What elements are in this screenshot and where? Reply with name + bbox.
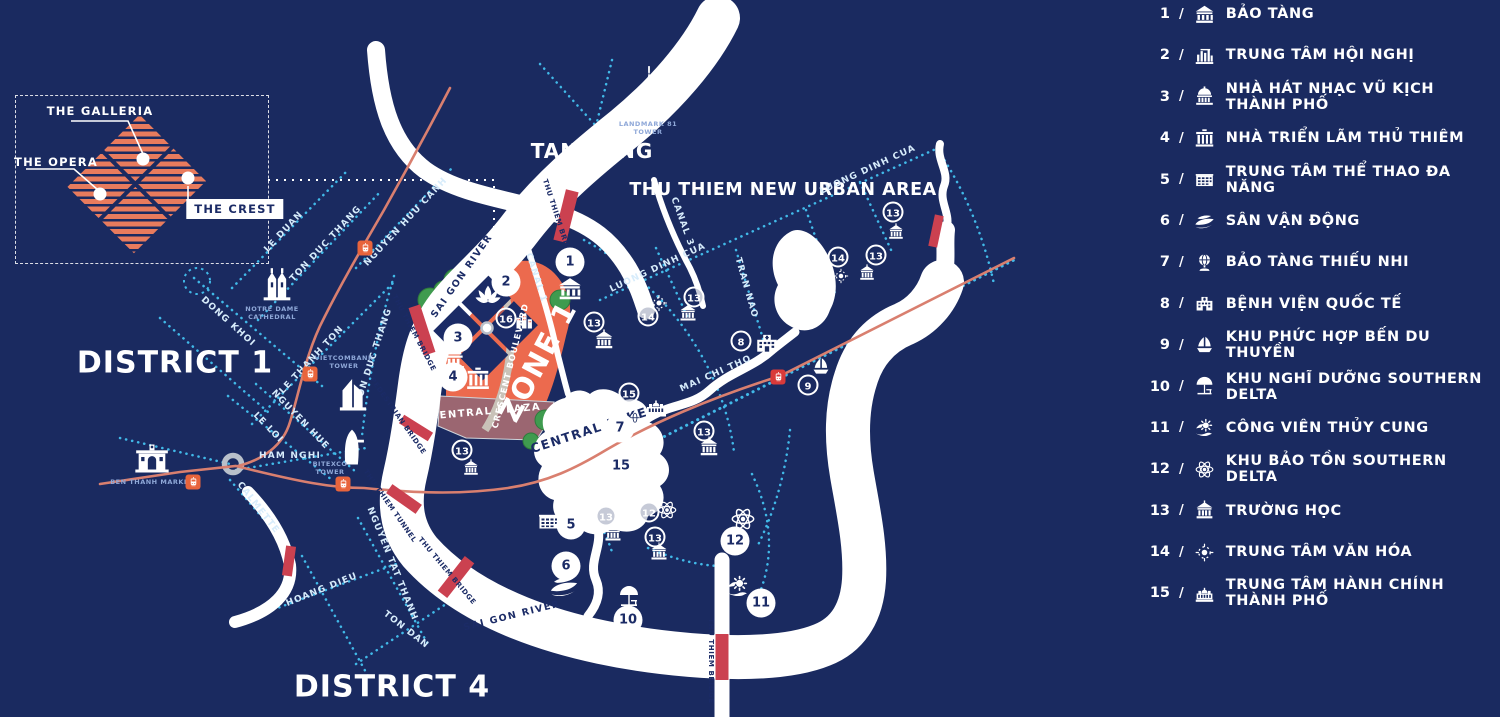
map-marker-16: 16 [496, 308, 517, 329]
legend-item-5: 5/TRUNG TÂM THỂ THAO ĐA NĂNG [1146, 168, 1496, 192]
tram-station-icon [336, 477, 351, 492]
legend-separator: / [1179, 172, 1184, 187]
street-label: SAI GON RIVER [462, 599, 561, 634]
legend-item-number: 6 [1146, 213, 1170, 229]
map-marker-3: 3 [444, 324, 473, 353]
poi-sun-icon [833, 268, 850, 285]
crest-dot [182, 172, 195, 185]
church-icon [257, 264, 297, 304]
globe-icon [1194, 252, 1215, 273]
map-marker-13: 13 [584, 312, 605, 333]
tram-icon [304, 368, 316, 380]
area-label: DISTRICT 4 [294, 670, 490, 705]
legend-item-label: KHU PHỨC HỢP BẾN DU THUYỀN [1226, 329, 1496, 361]
legend-item-label: TRUNG TÂM HÀNH CHÍNH THÀNH PHỐ [1226, 577, 1496, 609]
map-marker-1: 1 [556, 248, 585, 277]
school-icon [858, 264, 876, 282]
legend-panel: 1/BẢO TÀNG2/TRUNG TÂM HỘI NGHỊ3/NHÀ HÁT … [1146, 2, 1496, 623]
legend-item-13: 13/TRƯỜNG HỌC [1146, 499, 1496, 523]
poi-cityhall-icon [644, 395, 668, 419]
legend-item-11: 11/CÔNG VIÊN THỦY CUNG [1146, 416, 1496, 440]
sun-icon [1194, 542, 1215, 563]
opera-icon [1194, 86, 1215, 107]
poi-sailboat-icon [811, 357, 832, 378]
legend-item-icon [1192, 252, 1218, 273]
tram-station-icon [771, 370, 786, 385]
street-label: DONG KHOI [199, 295, 257, 349]
legend-item-number: 4 [1146, 130, 1170, 146]
legend-item-10: 10/KHU NGHĨ DƯỠNG SOUTHERN DELTA [1146, 375, 1496, 399]
street-label: CALMETTE [235, 480, 281, 536]
street-label: MAI CHI THO [679, 354, 754, 395]
map-marker-15: 15 [607, 452, 636, 481]
legend-item-icon [1192, 417, 1218, 438]
map-marker-13: 13 [452, 440, 473, 461]
map-marker-11: 11 [747, 589, 776, 618]
legend-item-label: TRUNG TÂM HỘI NGHỊ [1226, 47, 1415, 63]
aquarium-icon [1194, 417, 1215, 438]
street-label: PEDESTRIAN BRIDGE [368, 376, 427, 456]
map-marker-13: 13 [684, 287, 705, 308]
stadium-icon [1194, 210, 1215, 231]
street-label: CANAL 3 [668, 196, 695, 248]
legend-separator: / [1179, 7, 1184, 22]
map-marker-4: 4 [439, 363, 468, 392]
legend-item-number: 11 [1146, 420, 1170, 436]
map-marker-13: 13 [694, 421, 715, 442]
legend-item-icon [1192, 45, 1218, 66]
legend-item-9: 9/KHU PHỨC HỢP BẾN DU THUYỀN [1146, 333, 1496, 357]
street-label: LE LOI [251, 411, 285, 446]
legend-item-7: 7/BẢO TÀNG THIẾU NHI [1146, 250, 1496, 274]
legend-separator: / [1179, 338, 1184, 353]
hospital-icon [754, 330, 780, 356]
sun-icon [833, 268, 850, 285]
cityhall-icon [1194, 583, 1215, 604]
landmark-label: BITEXCO TOWER [313, 460, 348, 476]
legend-separator: / [1179, 379, 1184, 394]
poi-buildings-icon [514, 311, 534, 331]
legend-separator: / [1179, 255, 1184, 270]
map-marker-10: 10 [614, 606, 643, 635]
legend-item-icon [1192, 376, 1218, 397]
legend-item-icon [1192, 459, 1218, 480]
crest-label: THE CREST [186, 199, 283, 219]
landmark-label: NOTRE DAME CATHEDRAL [245, 305, 298, 321]
buildings-icon [514, 311, 534, 331]
poi-school-icon [858, 264, 876, 282]
legend-item-icon [1192, 128, 1218, 149]
legend-item-number: 12 [1146, 461, 1170, 477]
legend-separator: / [1179, 89, 1184, 104]
legend-item-3: 3/NHÀ HÁT NHẠC VŨ KỊCH THÀNH PHỐ [1146, 85, 1496, 109]
tram-icon [772, 371, 784, 383]
poi-museum-icon [557, 276, 583, 302]
market-icon [132, 437, 172, 477]
legend-item-number: 5 [1146, 172, 1170, 188]
street-label: THU THIEM BRIDGE [390, 293, 437, 372]
area-label: TAN CANG [531, 139, 654, 163]
legend-item-number: 9 [1146, 337, 1170, 353]
street-label: NGUYEN HUU CANH [362, 176, 449, 269]
street-label: NGUYEN TAT THANH [365, 506, 420, 622]
hospital-icon [1194, 293, 1215, 314]
map-marker-13: 13 [645, 527, 666, 548]
map-marker-14: 14 [638, 306, 659, 327]
map-marker-9: 9 [798, 375, 819, 396]
map-marker-2: 2 [492, 268, 521, 297]
legend-item-label: BẢO TÀNG THIẾU NHI [1226, 254, 1409, 270]
legend-item-label: KHU NGHĨ DƯỠNG SOUTHERN DELTA [1226, 371, 1496, 403]
legend-item-1: 1/BẢO TÀNG [1146, 2, 1496, 26]
legend-item-label: TRUNG TÂM THỂ THAO ĐA NĂNG [1226, 164, 1496, 196]
opera-dot [94, 188, 107, 201]
landmark-label: VIETCOMBANK TOWER [314, 354, 373, 370]
thu-thiem-masterplan-map: DISTRICT 1DISTRICT 4TAN CANGTHU THIEM NE… [0, 0, 1500, 717]
legend-item-number: 2 [1146, 47, 1170, 63]
legend-separator: / [1179, 462, 1184, 477]
legend-item-label: SÂN VẬN ĐỘNG [1226, 213, 1360, 229]
landmark-church-icon [257, 264, 297, 304]
area-label: DISTRICT 1 [77, 346, 273, 381]
legend-item-label: BẢO TÀNG [1226, 6, 1314, 22]
gate-icon [1194, 128, 1215, 149]
legend-separator: / [1179, 131, 1184, 146]
tram-station-icon [358, 241, 373, 256]
legend-separator: / [1179, 503, 1184, 518]
legend-item-4: 4/NHÀ TRIỂN LÃM THỦ THIÊM [1146, 126, 1496, 150]
map-marker-13: 13 [883, 202, 904, 223]
legend-separator: / [1179, 48, 1184, 63]
school-icon [462, 459, 480, 477]
opera-label: THE OPERA [14, 155, 98, 169]
street-label: TRAN NAO [733, 257, 760, 320]
atom-icon [1194, 459, 1215, 480]
legend-separator: / [1179, 213, 1184, 228]
map-marker-12: 12 [639, 502, 660, 523]
legend-item-number: 10 [1146, 379, 1170, 395]
poi-aquarium-icon [726, 574, 751, 599]
street-label: TON DAN [381, 609, 430, 651]
sports-icon [1194, 169, 1215, 190]
poi-school-icon [462, 459, 480, 477]
map-marker-6: 6 [552, 552, 581, 581]
inset-site-tiles [67, 115, 206, 254]
landmark-label: BEN THANH MARKET [110, 478, 194, 486]
landmark-label: LANDMARK 81 TOWER [619, 120, 677, 136]
tram-station-icon [303, 367, 318, 382]
project-inset-box: THE GALLERIA THE OPERA THE CREST [15, 95, 269, 264]
umbrella-icon [1194, 376, 1215, 397]
galleria-label: THE GALLERIA [47, 104, 154, 118]
inset-diagram [16, 96, 268, 263]
legend-item-icon [1192, 500, 1218, 521]
tram-station-icon [186, 475, 201, 490]
landmark81-icon [622, 65, 676, 119]
sailboat-icon [811, 357, 832, 378]
legend-separator: / [1179, 420, 1184, 435]
tram-icon [187, 476, 199, 488]
tram-icon [359, 242, 371, 254]
map-marker-7: 7 [606, 414, 635, 443]
legend-item-2: 2/TRUNG TÂM HỘI NGHỊ [1146, 43, 1496, 67]
legend-item-number: 15 [1146, 585, 1170, 601]
legend-item-label: TRƯỜNG HỌC [1226, 503, 1342, 519]
legend-item-label: KHU BẢO TỒN SOUTHERN DELTA [1226, 453, 1496, 485]
galleria-dot [137, 153, 150, 166]
museum-icon [557, 276, 583, 302]
legend-item-number: 3 [1146, 89, 1170, 105]
legend-item-number: 13 [1146, 503, 1170, 519]
legend-item-number: 14 [1146, 544, 1170, 560]
street-label: CANAL 1 [523, 252, 548, 304]
landmark-landmark81-icon [622, 65, 676, 119]
cityhall-icon [644, 395, 668, 419]
vcb-tower-icon [332, 372, 374, 414]
legend-item-label: CÔNG VIÊN THỦY CUNG [1226, 420, 1429, 436]
legend-item-number: 1 [1146, 6, 1170, 22]
legend-item-15: 15/TRUNG TÂM HÀNH CHÍNH THÀNH PHỐ [1146, 581, 1496, 605]
legend-item-12: 12/KHU BẢO TỒN SOUTHERN DELTA [1146, 457, 1496, 481]
museum-icon [1194, 4, 1215, 25]
map-marker-13: 13 [596, 506, 617, 527]
legend-item-14: 14/TRUNG TÂM VĂN HÓA [1146, 540, 1496, 564]
sailboat-icon [1194, 335, 1215, 356]
street-label: HOANG DIEU [285, 571, 359, 609]
map-marker-15: 15 [619, 383, 640, 404]
legend-item-icon [1192, 335, 1218, 356]
map-marker-14: 14 [828, 247, 849, 268]
legend-item-label: NHÀ HÁT NHẠC VŨ KỊCH THÀNH PHỐ [1226, 81, 1496, 113]
legend-item-icon [1192, 542, 1218, 563]
legend-separator: / [1179, 296, 1184, 311]
map-marker-5: 5 [557, 511, 586, 540]
legend-item-label: BỆNH VIỆN QUỐC TẾ [1226, 296, 1402, 312]
poi-school-icon [887, 223, 905, 241]
map-marker-13: 13 [866, 245, 887, 266]
street-label: THU THIEM BRIDGE [707, 618, 715, 703]
legend-item-icon [1192, 210, 1218, 231]
convention-icon [1194, 45, 1215, 66]
street-label: THU THIEM BRIDGE [416, 536, 477, 607]
legend-item-6: 6/SÂN VẬN ĐỘNG [1146, 209, 1496, 233]
legend-item-icon [1192, 583, 1218, 604]
legend-item-icon [1192, 4, 1218, 25]
map-marker-12: 12 [721, 527, 750, 556]
legend-item-icon [1192, 86, 1218, 107]
school-icon [887, 223, 905, 241]
aquarium-icon [726, 574, 751, 599]
tram-icon [337, 478, 349, 490]
legend-item-number: 8 [1146, 296, 1170, 312]
legend-item-icon [1192, 169, 1218, 190]
legend-item-label: NHÀ TRIỂN LÃM THỦ THIÊM [1226, 130, 1464, 146]
landmark-vcb-tower-icon [332, 372, 374, 414]
gate-icon [465, 366, 491, 392]
legend-item-label: TRUNG TÂM VĂN HÓA [1226, 544, 1413, 560]
legend-item-icon [1192, 293, 1218, 314]
school-icon [1194, 500, 1215, 521]
legend-item-number: 7 [1146, 254, 1170, 270]
legend-item-8: 8/BỆNH VIỆN QUỐC TẾ [1146, 292, 1496, 316]
landmark-market-icon [132, 437, 172, 477]
legend-separator: / [1179, 545, 1184, 560]
poi-gate-icon [465, 366, 491, 392]
poi-hospital-icon [754, 330, 780, 356]
map-marker-8: 8 [731, 331, 752, 352]
legend-separator: / [1179, 586, 1184, 601]
